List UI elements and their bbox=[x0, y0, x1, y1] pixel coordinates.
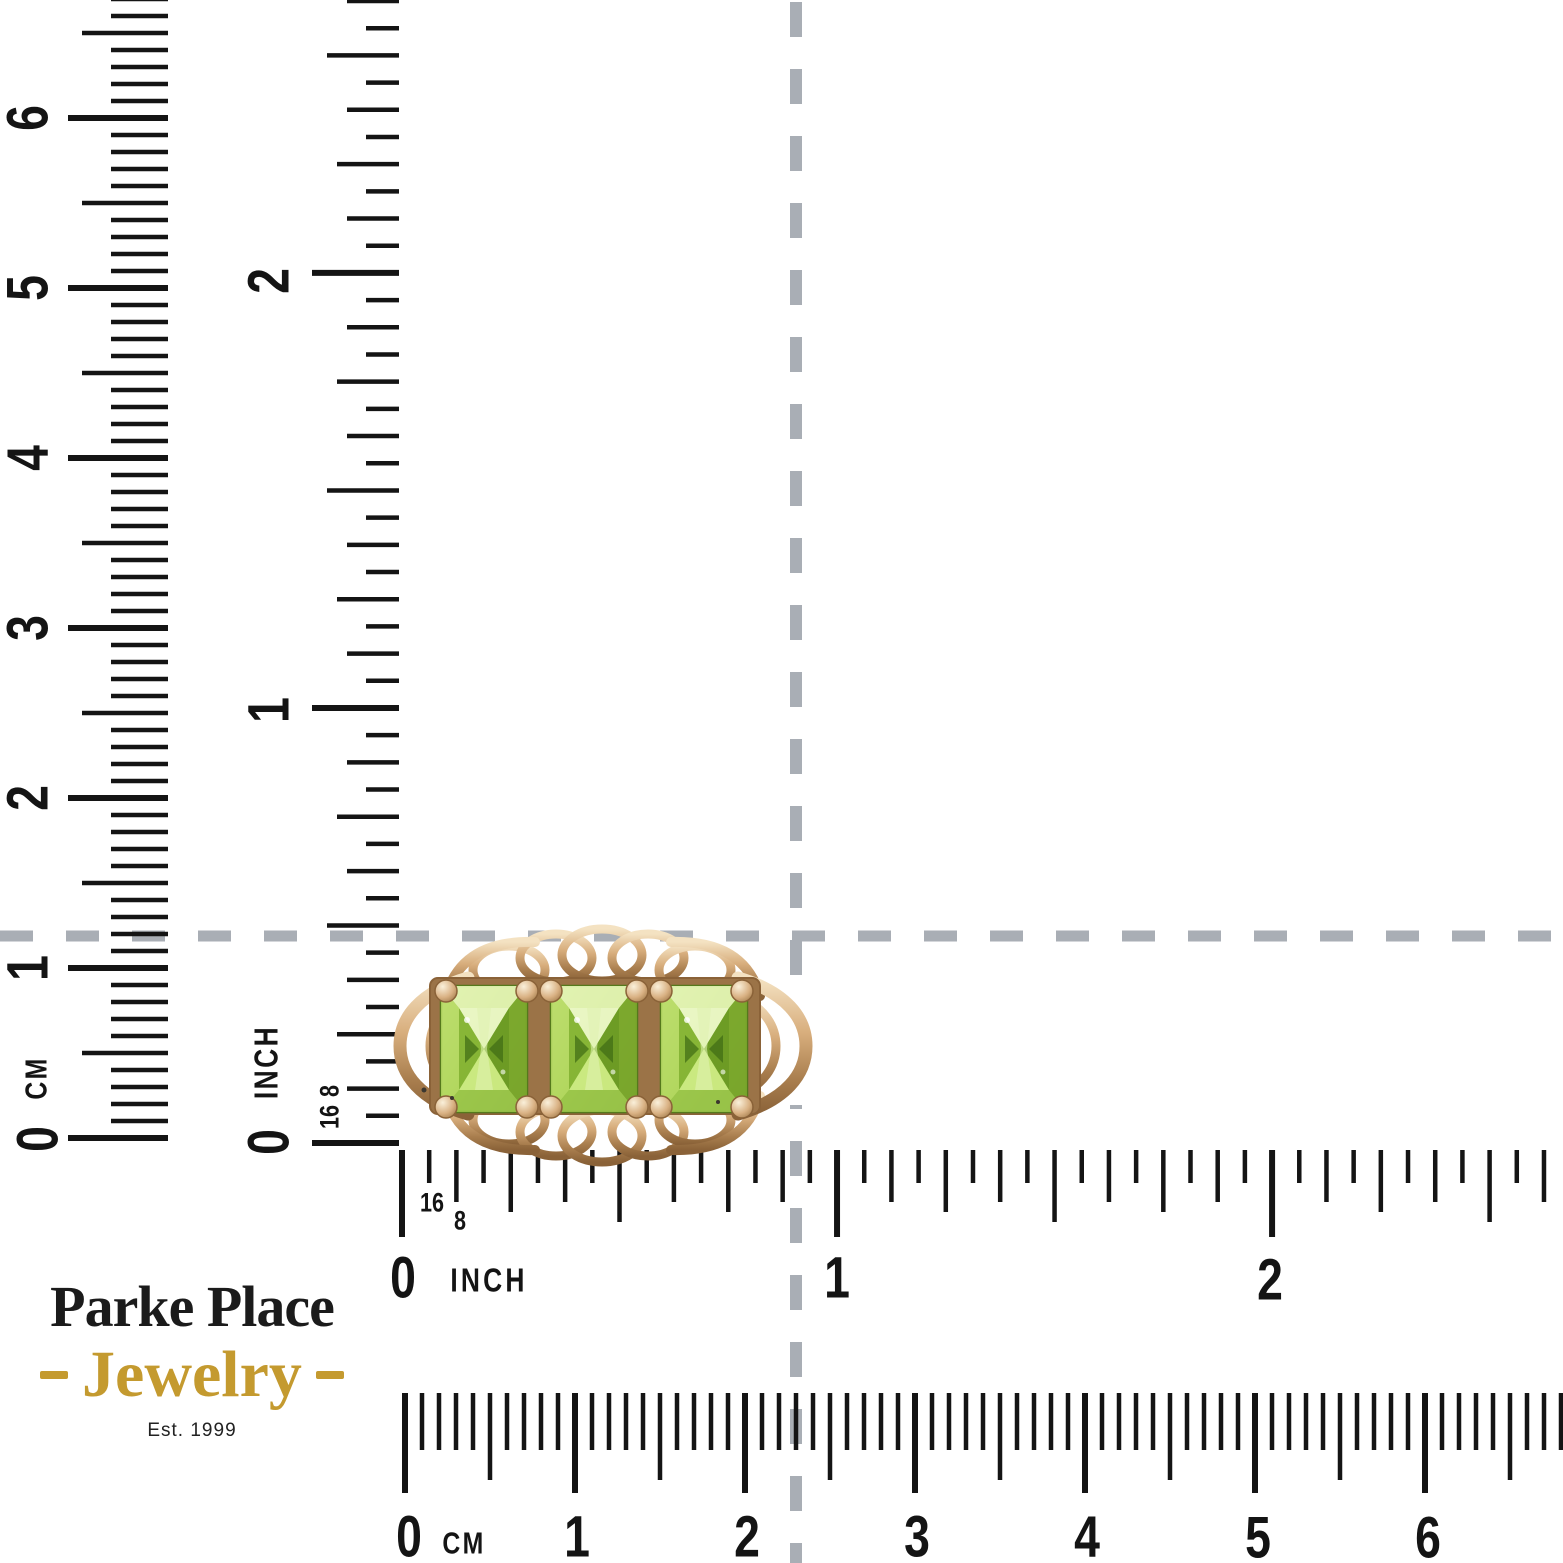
horizontal-inch-ruler: 0INCH16812 bbox=[390, 1150, 1544, 1313]
ruler-label: 5 bbox=[1245, 1505, 1271, 1563]
ruler-label: INCH bbox=[249, 1025, 285, 1099]
svg-text:2: 2 bbox=[236, 268, 301, 294]
ruler-label: 3 bbox=[904, 1504, 930, 1563]
ruler-label: INCH bbox=[450, 1263, 527, 1299]
svg-text:16: 16 bbox=[315, 1105, 345, 1129]
brand-logo: Parke Place Jewelry Est. 1999 bbox=[18, 1278, 366, 1442]
svg-text:1: 1 bbox=[564, 1504, 590, 1563]
ruler-label: 0 bbox=[236, 1129, 301, 1155]
vertical-inch-ruler: 0INCH81612 bbox=[236, 1, 399, 1155]
brand-established: Est. 1999 bbox=[18, 1420, 366, 1442]
ruler-label: 8 bbox=[315, 1085, 345, 1097]
ruler-label: 1 bbox=[236, 697, 301, 723]
svg-text:CM: CM bbox=[19, 1056, 53, 1099]
svg-text:8: 8 bbox=[315, 1085, 345, 1097]
svg-text:3: 3 bbox=[904, 1504, 930, 1563]
svg-text:3: 3 bbox=[0, 615, 61, 641]
svg-text:2: 2 bbox=[0, 785, 61, 811]
svg-text:4: 4 bbox=[1074, 1504, 1100, 1563]
svg-text:1: 1 bbox=[824, 1245, 850, 1310]
ruler-label: 6 bbox=[0, 105, 61, 131]
svg-text:6: 6 bbox=[0, 105, 61, 131]
ruler-label: 4 bbox=[1074, 1504, 1100, 1563]
brand-jewelry-word: Jewelry bbox=[82, 1342, 302, 1408]
svg-text:CM: CM bbox=[442, 1526, 485, 1560]
svg-text:1: 1 bbox=[236, 697, 301, 723]
jewelry-dash-left bbox=[40, 1371, 68, 1379]
ruler-label: 0 bbox=[390, 1245, 416, 1310]
ruler-label: 3 bbox=[0, 615, 61, 641]
ruler-label: 16 bbox=[420, 1188, 444, 1218]
svg-text:16: 16 bbox=[420, 1188, 444, 1218]
svg-text:2: 2 bbox=[734, 1504, 760, 1563]
ruler-label: CM bbox=[442, 1526, 485, 1560]
brand-name: Parke Place bbox=[18, 1278, 366, 1336]
svg-text:6: 6 bbox=[1415, 1505, 1441, 1563]
horizontal-cm-ruler: 0CM123456 bbox=[396, 1393, 1561, 1563]
ruler-label: 5 bbox=[0, 275, 61, 301]
ruler-label: 6 bbox=[1415, 1505, 1441, 1563]
ruler-label: 1 bbox=[0, 955, 61, 981]
svg-text:4: 4 bbox=[0, 445, 61, 471]
ruler-label: 1 bbox=[824, 1245, 850, 1310]
ruler-label: 1 bbox=[564, 1504, 590, 1563]
brand-jewelry-line: Jewelry bbox=[18, 1342, 366, 1408]
ruler-label: 0 bbox=[396, 1504, 422, 1563]
ruler-label: CM bbox=[19, 1056, 53, 1099]
svg-text:0: 0 bbox=[236, 1129, 301, 1155]
vertical-cm-ruler: 0CM123456 bbox=[0, 0, 168, 1152]
peridot-gold-ring-photo bbox=[400, 929, 806, 1162]
ruler-label: 2 bbox=[734, 1504, 760, 1563]
svg-text:0: 0 bbox=[390, 1245, 416, 1310]
ruler-label: 2 bbox=[1257, 1247, 1283, 1312]
jewelry-dash-right bbox=[316, 1371, 344, 1379]
ruler-label: 0 bbox=[5, 1126, 70, 1152]
svg-text:2: 2 bbox=[1257, 1247, 1283, 1312]
svg-text:0: 0 bbox=[396, 1504, 422, 1563]
svg-text:INCH: INCH bbox=[249, 1025, 285, 1099]
ruler-label: 8 bbox=[454, 1206, 466, 1236]
ruler-label: 2 bbox=[236, 268, 301, 294]
svg-text:5: 5 bbox=[1245, 1505, 1271, 1563]
svg-text:1: 1 bbox=[0, 955, 61, 981]
svg-text:5: 5 bbox=[0, 275, 61, 301]
ruler-label: 16 bbox=[315, 1105, 345, 1129]
svg-text:0: 0 bbox=[5, 1126, 70, 1152]
ruler-label: 4 bbox=[0, 445, 61, 471]
ruler-label: 2 bbox=[0, 785, 61, 811]
product-photo-canvas: 0CM123456 0INCH81612 0INCH16812 0CM12345… bbox=[0, 0, 1563, 1563]
svg-text:INCH: INCH bbox=[450, 1263, 527, 1299]
svg-text:8: 8 bbox=[454, 1206, 466, 1236]
